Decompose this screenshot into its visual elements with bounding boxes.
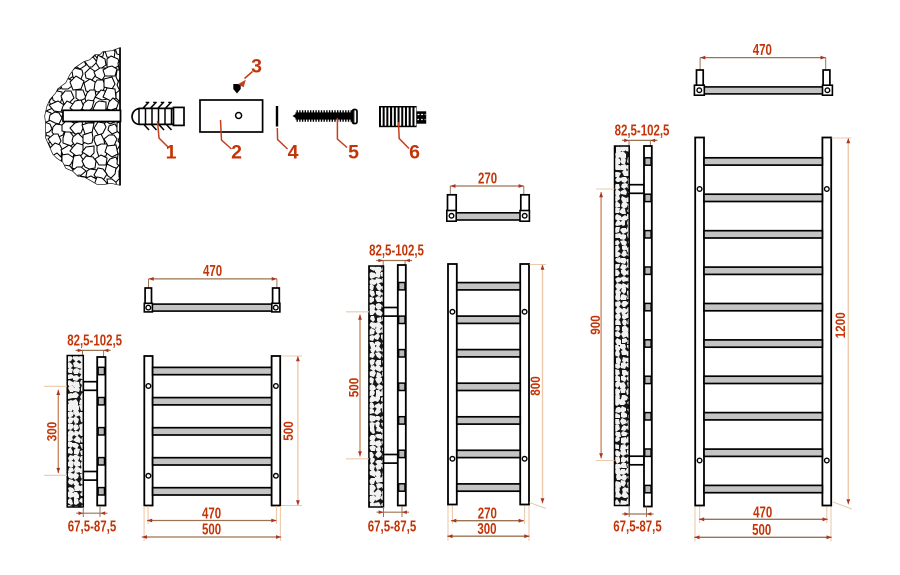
svg-text:470: 470 — [202, 505, 221, 522]
svg-text:82,5-102,5: 82,5-102,5 — [369, 242, 424, 259]
svg-text:67,5-87,5: 67,5-87,5 — [68, 518, 117, 535]
svg-text:500: 500 — [202, 521, 221, 538]
svg-text:67,5-87,5: 67,5-87,5 — [368, 518, 417, 535]
svg-text:470: 470 — [753, 504, 772, 521]
svg-text:300: 300 — [43, 422, 59, 442]
svg-text:4: 4 — [288, 142, 299, 164]
svg-text:1200: 1200 — [832, 312, 848, 338]
svg-text:82,5-102,5: 82,5-102,5 — [615, 122, 670, 139]
svg-text:82,5-102,5: 82,5-102,5 — [67, 332, 122, 349]
svg-text:800: 800 — [527, 376, 543, 396]
svg-text:2: 2 — [231, 142, 242, 164]
svg-text:470: 470 — [203, 263, 222, 280]
svg-text:6: 6 — [409, 142, 420, 164]
svg-text:500: 500 — [280, 421, 296, 441]
svg-text:900: 900 — [587, 315, 603, 335]
svg-text:500: 500 — [345, 378, 361, 398]
svg-text:1: 1 — [166, 142, 177, 164]
svg-text:500: 500 — [752, 521, 771, 538]
svg-text:67,5-87,5: 67,5-87,5 — [613, 518, 662, 535]
svg-text:270: 270 — [478, 170, 497, 187]
svg-text:5: 5 — [348, 142, 359, 164]
svg-text:3: 3 — [251, 56, 262, 78]
svg-text:470: 470 — [753, 42, 772, 59]
svg-text:300: 300 — [477, 520, 496, 537]
